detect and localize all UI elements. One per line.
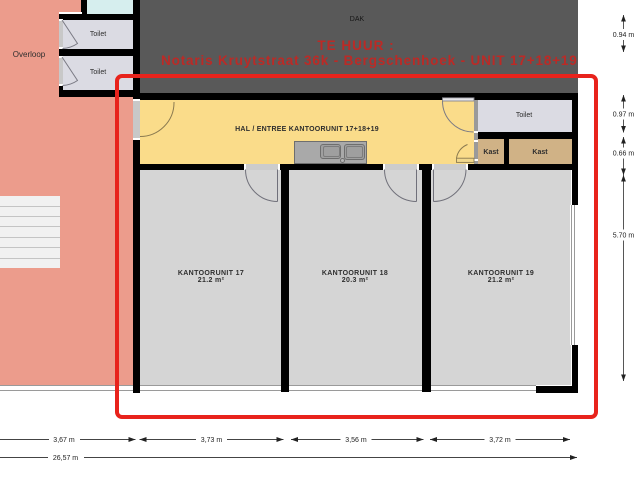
svg-text:5.70 m: 5.70 m [613,233,635,240]
svg-text:0.94 m: 0.94 m [613,32,635,39]
svg-text:26,57 m: 26,57 m [53,455,78,462]
svg-text:0.97 m: 0.97 m [613,112,635,119]
svg-text:3,73 m: 3,73 m [201,437,223,444]
svg-text:3,56 m: 3,56 m [345,437,367,444]
svg-text:3,67 m: 3,67 m [53,437,75,444]
svg-text:3,72 m: 3,72 m [489,437,511,444]
svg-text:0.66 m: 0.66 m [613,151,635,158]
